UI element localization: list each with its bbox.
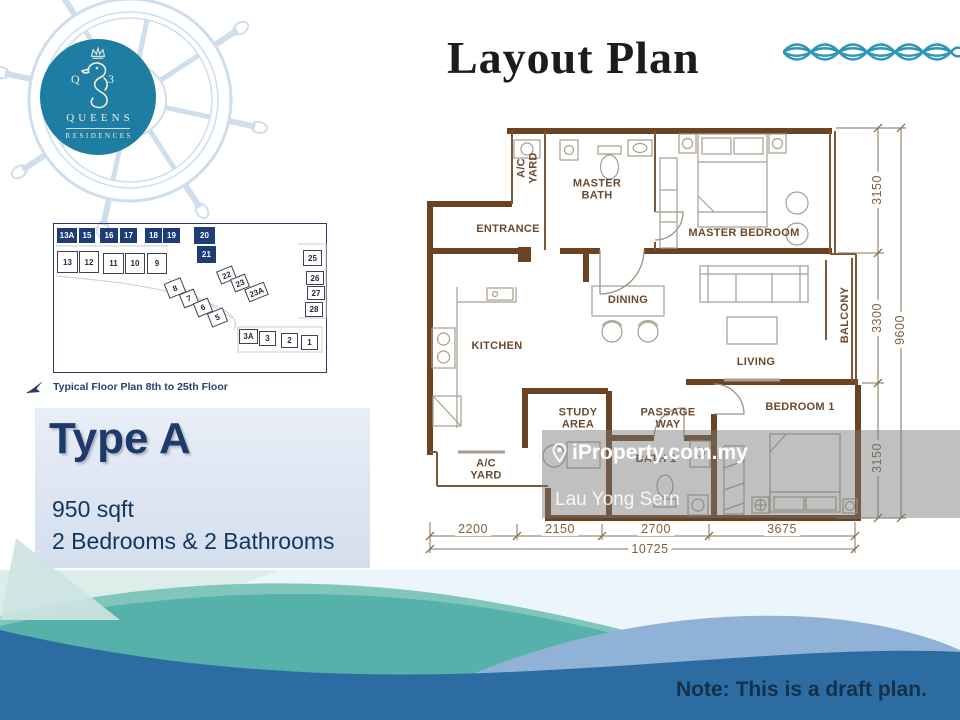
room-label-2: ENTRANCE — [476, 223, 540, 235]
site-map-caption: Typical Floor Plan 8th to 25th Floor — [53, 381, 228, 393]
site-unit-2: 2 — [281, 333, 298, 348]
wave-tip-graphic — [0, 538, 120, 620]
room-label-4: DINING — [608, 294, 648, 306]
dim-right-0: 3150 — [870, 172, 884, 208]
room-label-0: A/C YARD — [516, 152, 541, 183]
dim-bottom-3: 3675 — [764, 522, 800, 536]
room-label-5: KITCHEN — [472, 340, 523, 352]
wave-ornament-icon — [783, 30, 960, 74]
room-label-9: PASSAGE WAY — [640, 407, 695, 432]
room-label-8: STUDY AREA — [559, 407, 598, 432]
site-unit-11: 11 — [103, 253, 124, 274]
site-unit-20: 20 — [194, 227, 215, 244]
site-unit-1: 1 — [301, 335, 318, 350]
logo-monogram-3: 3 — [108, 72, 114, 87]
site-unit-27: 27 — [307, 286, 325, 300]
logo-subname: RESIDENCES — [40, 132, 156, 140]
watermark-overlay: iProperty.com.my Lau Yong Sern — [542, 430, 960, 518]
site-unit-10: 10 — [125, 253, 145, 274]
site-unit-25: 25 — [303, 250, 322, 266]
room-label-3: MASTER BEDROOM — [688, 227, 799, 239]
site-unit-16: 16 — [100, 228, 118, 243]
compass-icon — [26, 379, 44, 394]
page-title: Layout Plan — [447, 33, 700, 84]
dim-bottom-0: 2200 — [455, 522, 491, 536]
dim-bottom-1: 2150 — [542, 522, 578, 536]
logo-name: QUEENS — [40, 112, 156, 124]
site-unit-28: 28 — [305, 302, 323, 317]
room-label-7: BALCONY — [839, 287, 851, 344]
room-label-1: MASTER BATH — [573, 178, 621, 203]
logo-divider — [66, 128, 130, 129]
dim-bottom-total: 10725 — [628, 542, 671, 556]
site-unit-26: 26 — [306, 271, 324, 285]
site-unit-17: 17 — [120, 228, 137, 243]
location-pin-icon — [552, 443, 567, 463]
type-area: 950 sqft — [52, 496, 134, 523]
watermark-agent: Lau Yong Sern — [555, 489, 680, 511]
site-unit-18: 18 — [145, 228, 162, 243]
type-title: Type A — [49, 414, 191, 464]
watermark-brand: iProperty.com.my — [552, 441, 748, 465]
room-label-6: LIVING — [737, 356, 775, 368]
dim-right-total: 9600 — [893, 312, 907, 348]
logo-monogram-q: Q — [71, 72, 80, 87]
draft-note: Note: This is a draft plan. — [676, 678, 927, 702]
site-unit-12: 12 — [79, 251, 99, 273]
dim-right-1: 3300 — [870, 300, 884, 336]
site-unit-19: 19 — [163, 228, 180, 243]
room-label-10: BEDROOM 1 — [765, 401, 834, 413]
watermark-brand-text: iProperty.com.my — [572, 441, 748, 465]
site-unit-3A: 3A — [239, 329, 258, 344]
slide: Q 3 QUEENS RESIDENCES Layout Plan 13A151… — [0, 0, 960, 720]
site-unit-3: 3 — [259, 331, 276, 346]
crown-icon — [88, 46, 108, 59]
brand-logo: Q 3 QUEENS RESIDENCES — [40, 39, 156, 155]
site-unit-21: 21 — [197, 246, 216, 263]
site-unit-15: 15 — [79, 228, 95, 243]
site-unit-13: 13 — [57, 251, 78, 273]
site-unit-13A: 13A — [57, 228, 77, 243]
site-unit-9: 9 — [147, 253, 167, 274]
room-label-12: A/C YARD — [470, 458, 501, 483]
dim-bottom-2: 2700 — [638, 522, 674, 536]
